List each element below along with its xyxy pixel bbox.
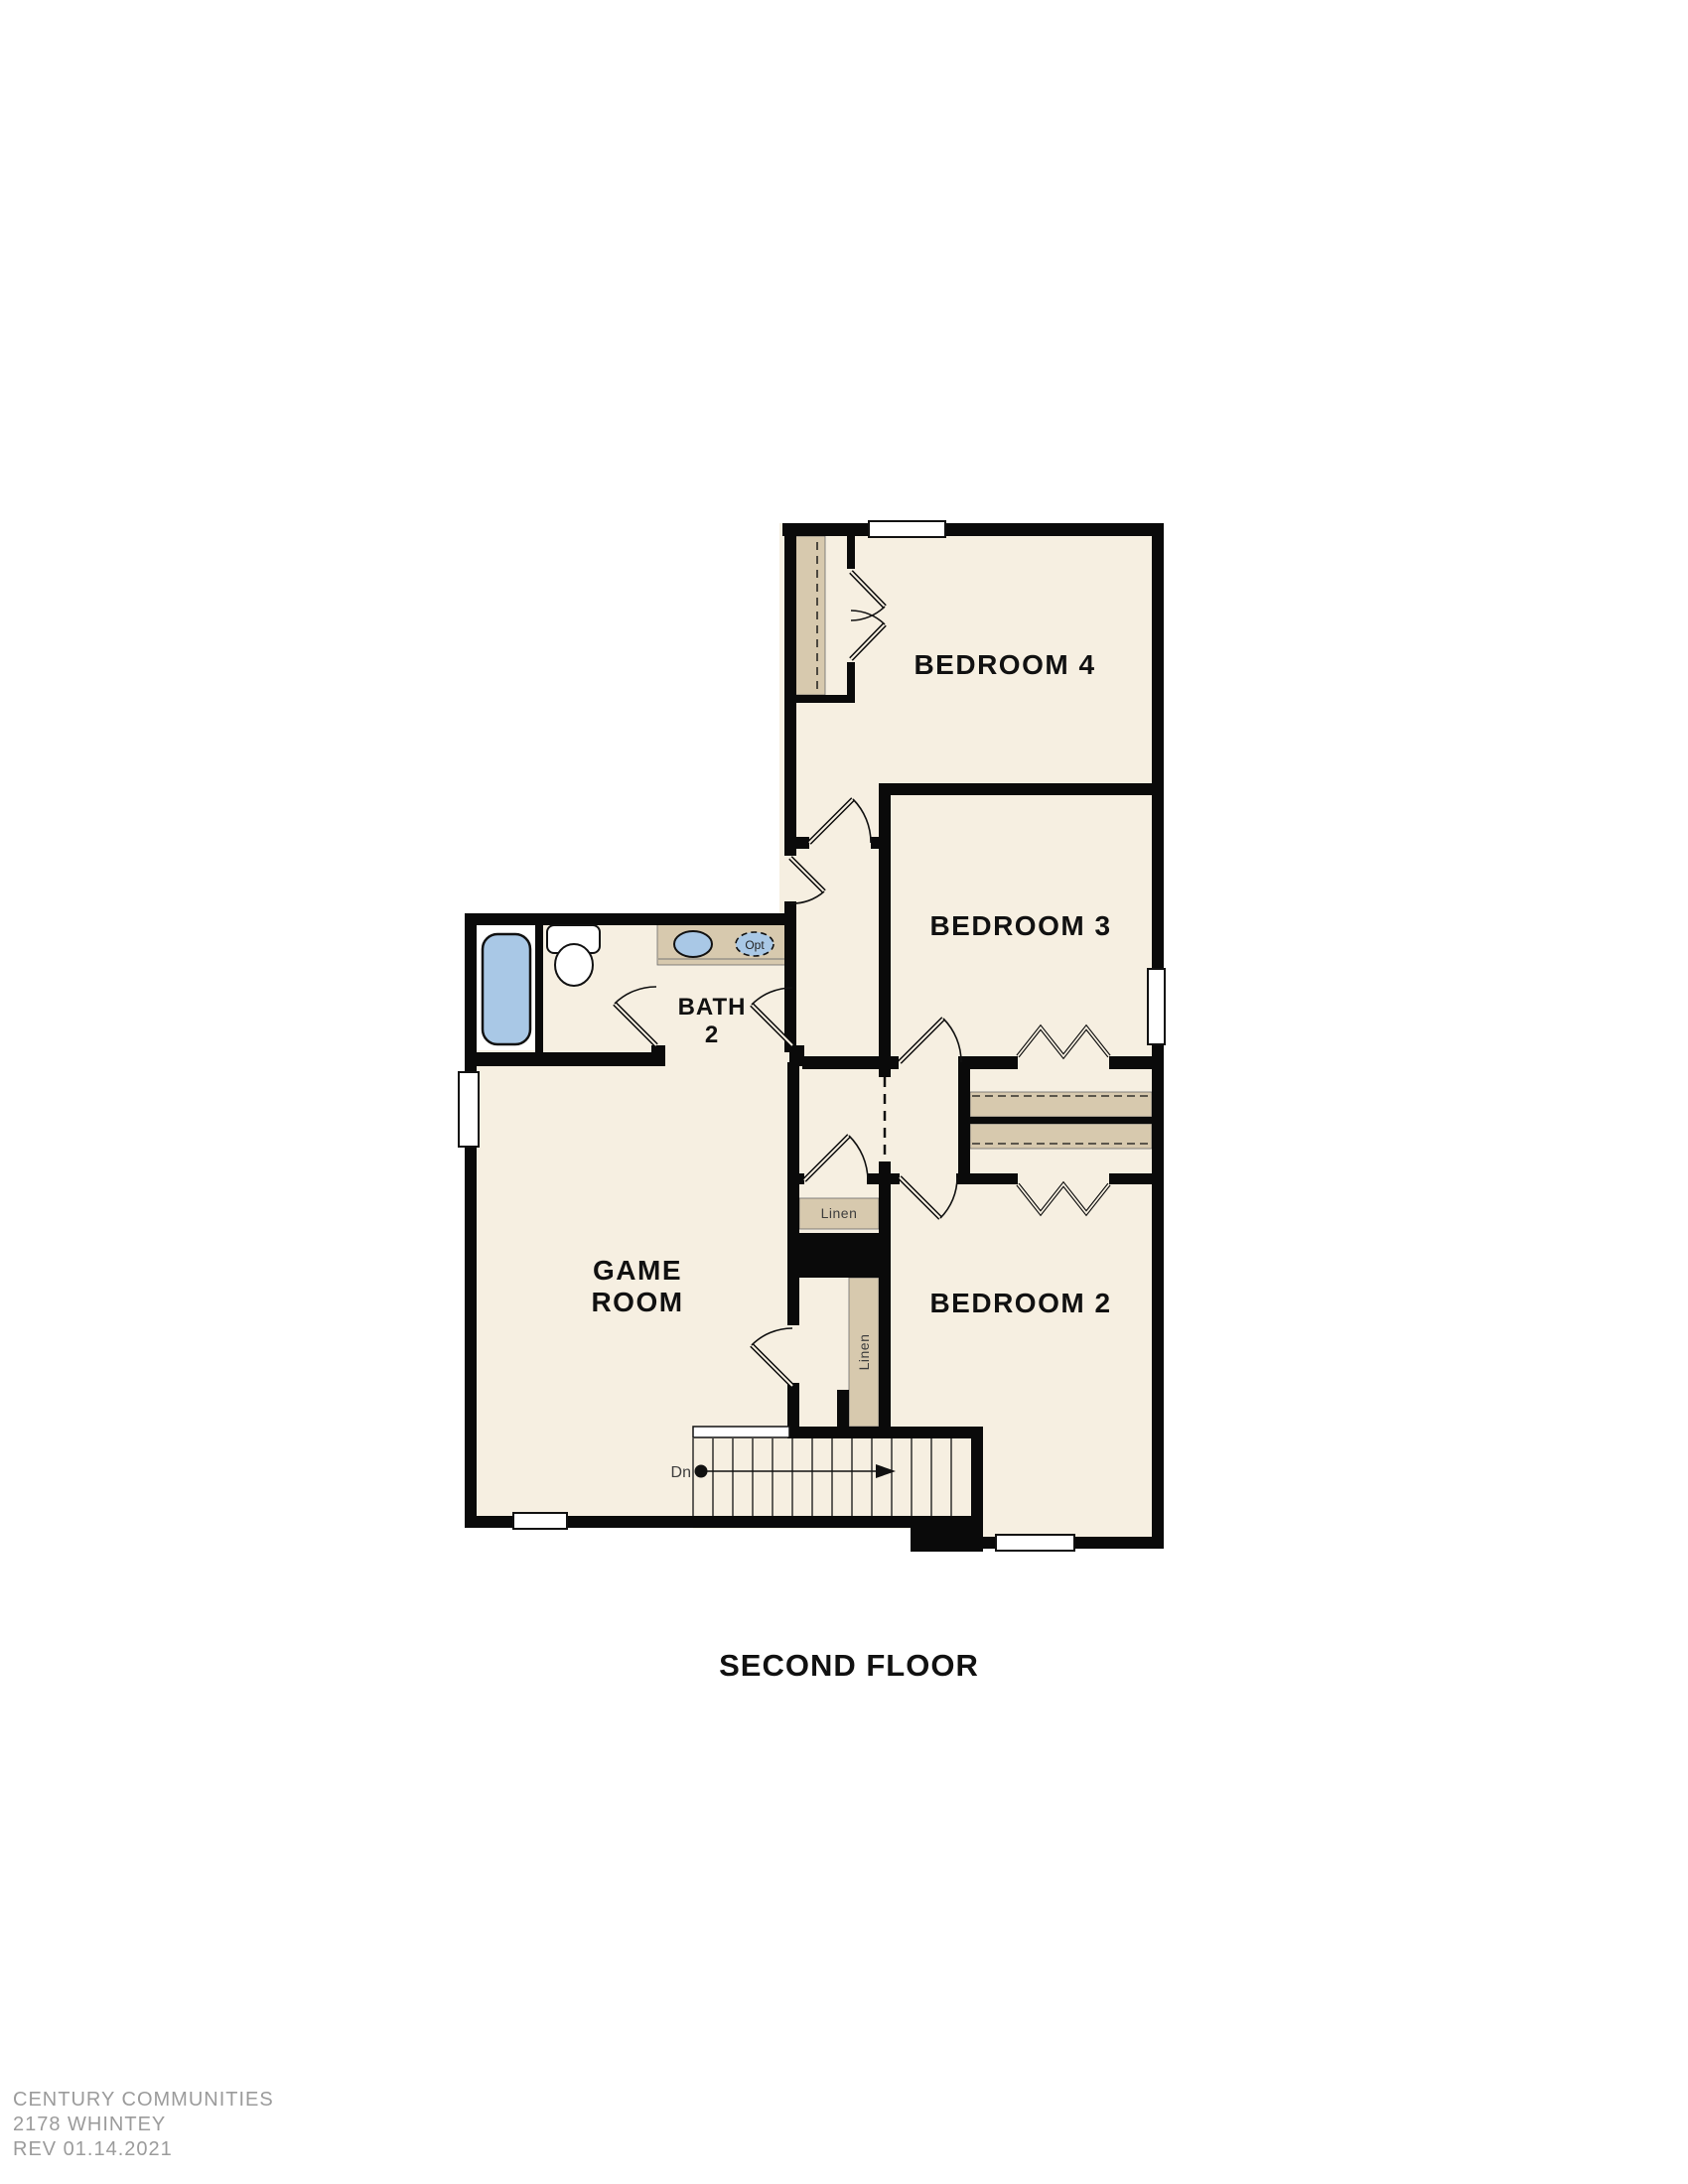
window-bedroom3 — [1148, 969, 1165, 1044]
footer-company: CENTURY COMMUNITIES — [13, 2088, 274, 2113]
wall-stair-north — [789, 1427, 983, 1438]
wall-ext-bottom-a — [983, 1537, 996, 1549]
wall-bedroom4-door-b — [871, 837, 880, 849]
bedroom4-closet-strip — [793, 536, 825, 695]
optional-sink-label: Opt — [745, 938, 765, 952]
game-room-label-line1: GAME — [593, 1255, 682, 1286]
bedroom2-closet-shelf — [970, 1124, 1152, 1149]
bathtub — [483, 934, 530, 1044]
window-game-room-bottom — [513, 1513, 567, 1529]
wall-bedroom3-top — [879, 783, 1164, 795]
footer-plan-number: 2178 WHINTEY — [13, 2113, 274, 2137]
wall-closet-bottom — [784, 695, 855, 703]
wall-bath-bottom — [465, 1052, 653, 1066]
linen-lower-label: Linen — [856, 1334, 872, 1371]
wall-game-bottom-b — [567, 1516, 911, 1528]
wall-closets-mid — [970, 1117, 1152, 1124]
wall-bedroom4-door-a — [784, 837, 809, 849]
window-bedroom4 — [869, 521, 945, 537]
wall-tub-niche — [535, 925, 543, 1052]
bedroom2-label: BEDROOM 2 — [929, 1288, 1111, 1318]
bedroom4-label: BEDROOM 4 — [914, 649, 1095, 680]
bedroom3-closet-shelf — [970, 1092, 1152, 1117]
wall-stair-east — [971, 1427, 983, 1552]
footer-revision: REV 01.14.2021 — [13, 2137, 274, 2162]
vanity-sink — [674, 931, 712, 957]
game-room-label-line2: ROOM — [591, 1287, 683, 1317]
stair-floor — [693, 1427, 983, 1529]
bath2-label-line1: BATH — [678, 994, 747, 1021]
bath2-label-line2: 2 — [705, 1022, 719, 1048]
wall-post-1 — [651, 1045, 665, 1066]
wall-bedroom2-north-b — [867, 1173, 900, 1184]
wall-left-a — [465, 913, 477, 1072]
floorplan-page: BEDROOM 4 BEDROOM 3 BEDROOM 2 BATH 2 GAM… — [0, 0, 1688, 2184]
wall-bath-top — [465, 913, 796, 925]
wall-linen-east — [879, 1184, 891, 1438]
stair-handrail — [693, 1427, 789, 1437]
wall-game-bottom-a — [465, 1516, 513, 1528]
window-game-room — [459, 1072, 479, 1147]
wall-hall-bottom — [802, 1056, 899, 1069]
wall-bedroom3-bottom-b — [1109, 1056, 1152, 1069]
wall-bedroom2-north-d — [1109, 1173, 1152, 1184]
chase-block — [787, 1233, 891, 1278]
wall-left-b — [465, 1147, 477, 1528]
wall-bedroom2-north-c — [956, 1173, 1018, 1184]
wall-top — [782, 523, 1164, 536]
wall-closets-west — [958, 1056, 970, 1184]
wall-ext-bottom-b — [1074, 1537, 1164, 1549]
bedroom3-label: BEDROOM 3 — [929, 910, 1111, 941]
plan-title: SECOND FLOOR — [0, 1648, 1688, 1684]
window-bedroom2 — [996, 1535, 1074, 1551]
wall-bedroom3-west — [879, 783, 891, 1077]
linen-upper-label: Linen — [821, 1205, 858, 1221]
bedroom2-ext-floor — [983, 1427, 1164, 1549]
toilet-bowl — [555, 944, 593, 986]
stairs-dn-label: Dn — [671, 1464, 691, 1481]
floorplan-drawing: BEDROOM 4 BEDROOM 3 BEDROOM 2 BATH 2 GAM… — [0, 0, 1688, 2184]
wall-game-east-a — [787, 1062, 799, 1325]
footer-block: CENTURY COMMUNITIES 2178 WHINTEY REV 01.… — [13, 2088, 274, 2162]
wall-west-upper — [784, 523, 796, 856]
wall-closet-stub-top — [847, 529, 855, 569]
wall-linen-stub — [837, 1390, 849, 1427]
